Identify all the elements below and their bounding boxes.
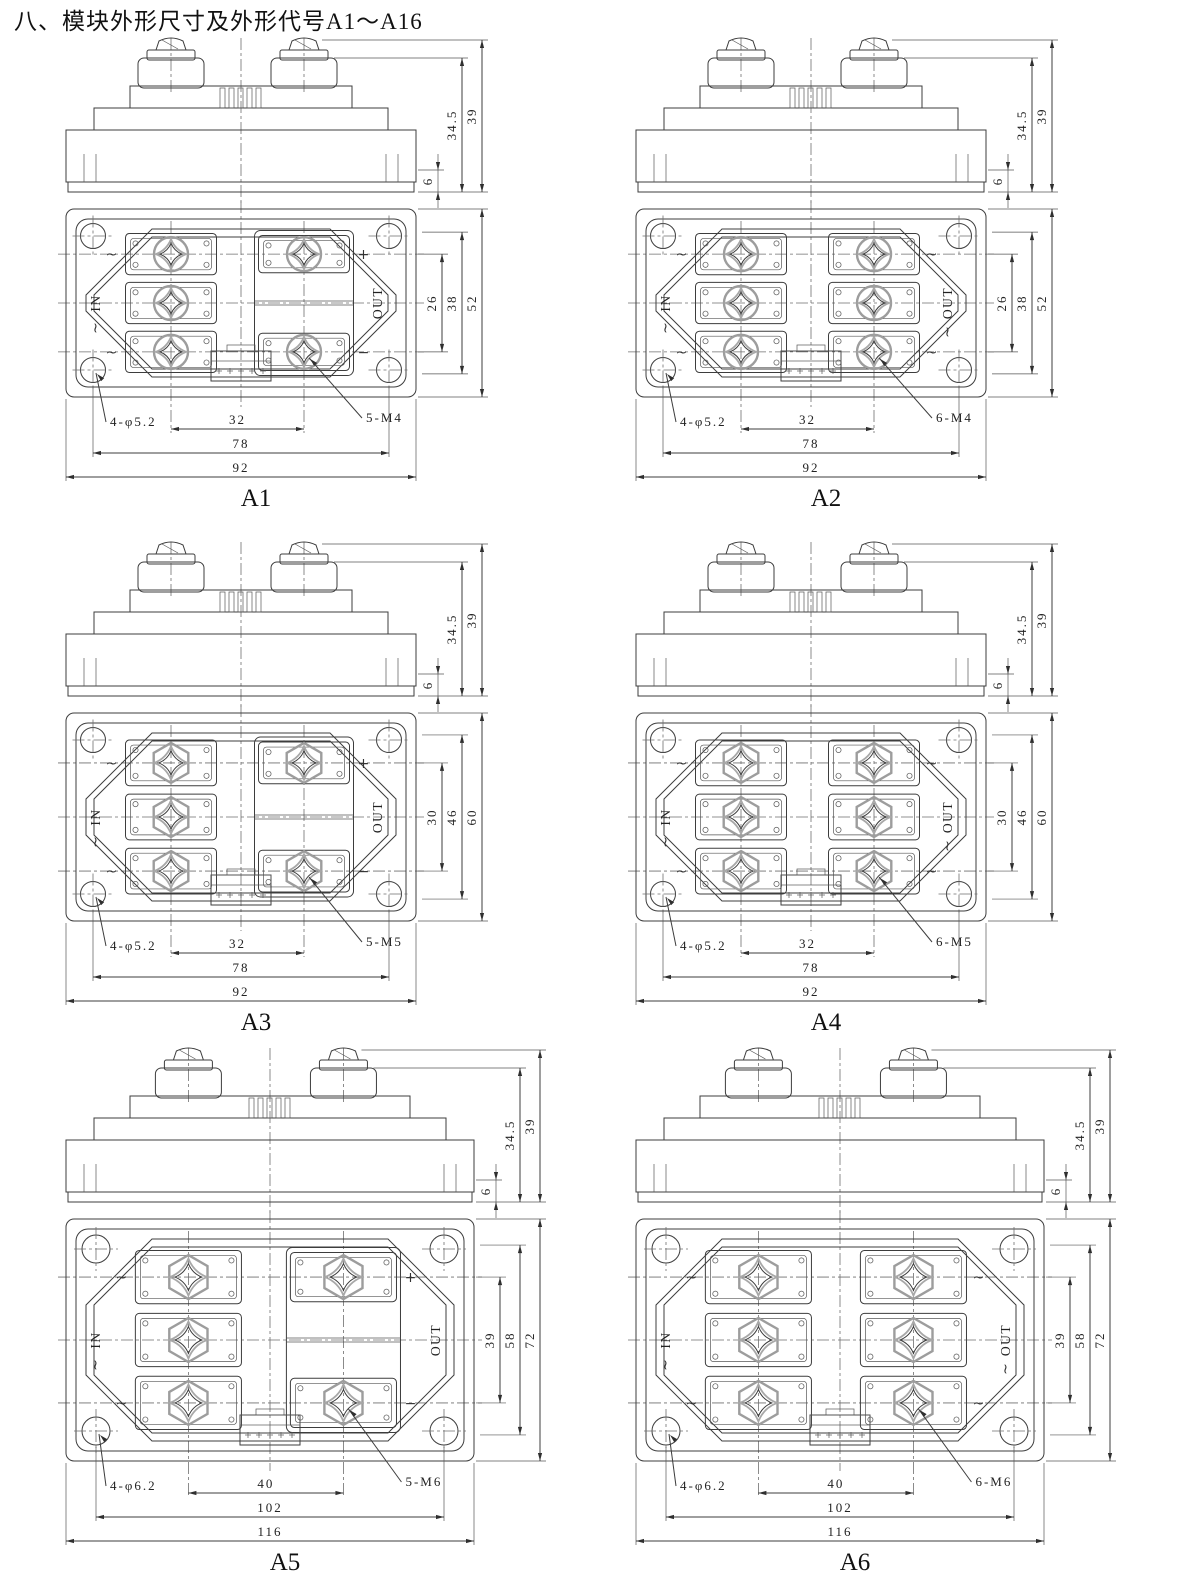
side-dim-tab: 6 [420, 681, 435, 690]
in-label: IN [88, 808, 103, 825]
side-dim-tab: 6 [990, 177, 1005, 186]
mounting-hole [939, 350, 980, 391]
top-view: IN~~~OUT+− [58, 705, 424, 957]
top-view: IN~~~OUT~~~ [628, 201, 994, 433]
phase-mark: ~ [88, 834, 104, 848]
module-drawing: 634.539IN~~~OUT~~~3046603278924-φ5.26-M5 [606, 538, 1166, 1043]
vertical-dimensions: 263852 [418, 209, 488, 397]
module-drawing: 634.539IN~~~OUT~~~395872401021164-φ6.26-… [606, 1044, 1166, 1549]
screws-callout: 5-M6 [405, 1474, 442, 1489]
module-drawing: 634.539IN~~~OUT+−395872401021164-φ6.25-M… [36, 1044, 596, 1549]
polarity-plus-mark: + [358, 247, 372, 263]
phase-mark: ~ [106, 756, 120, 772]
phase-mark: ~ [926, 756, 940, 772]
out-label: OUT [370, 287, 385, 319]
side-dim-total: 39 [1034, 108, 1049, 125]
in-label: IN [658, 808, 673, 825]
vert-dim-outer: 60 [1034, 809, 1049, 826]
mounting-hole [73, 720, 114, 761]
phase-mark: ~ [926, 864, 940, 880]
side-dim-body: 34.5 [1014, 614, 1029, 645]
vert-dim-mid: 38 [1014, 295, 1029, 312]
pitch-dimension: 40 [827, 1476, 844, 1491]
screws-callout: 5-M4 [366, 410, 403, 425]
vert-dim-outer: 60 [464, 809, 479, 826]
in-label: IN [658, 294, 673, 311]
outer-width-dimension: 92 [803, 460, 820, 475]
vert-dim-outer: 52 [1034, 295, 1049, 312]
figure-a6: 634.539IN~~~OUT~~~395872401021164-φ6.26-… [606, 1044, 1166, 1589]
vertical-dimensions: 304660 [418, 713, 488, 921]
vert-dim-inner: 39 [1052, 1332, 1067, 1349]
side-dim-tab: 6 [990, 681, 1005, 690]
figure-label: A1 [211, 485, 301, 513]
side-view: 634.539 [66, 38, 488, 208]
side-dim-total: 39 [1034, 612, 1049, 629]
phase-mark: ~ [926, 247, 940, 263]
holes-callout: 4-φ5.2 [110, 414, 157, 429]
mid-width-dimension: 102 [257, 1500, 283, 1515]
side-dimensions: 634.539 [322, 544, 488, 712]
mid-width-dimension: 102 [827, 1500, 853, 1515]
phase-mark: ~ [998, 1361, 1014, 1375]
side-dim-total: 39 [1092, 1118, 1107, 1135]
vert-dim-inner: 30 [424, 809, 439, 826]
vertical-dimensions: 395872 [1046, 1219, 1116, 1461]
vert-dim-outer: 72 [1092, 1332, 1107, 1349]
phase-mark: ~ [940, 324, 956, 338]
out-label: OUT [428, 1324, 443, 1356]
screws-callout: 6-M4 [936, 410, 973, 425]
mounting-hole [74, 1227, 118, 1271]
in-label: IN [88, 294, 103, 311]
vert-dim-inner: 39 [482, 1332, 497, 1349]
top-view: IN~~~OUT~~~ [628, 705, 994, 957]
in-label: IN [88, 1331, 103, 1348]
figure-label: A6 [810, 1549, 900, 1577]
figure-label: A3 [211, 1009, 301, 1037]
datasheet-page: 八、模块外形尺寸及外形代号A1～A16 634.539IN~~~OUT+−263… [0, 0, 1200, 1596]
phase-mark: ~ [973, 1396, 987, 1412]
module-drawing: 634.539IN~~~OUT~~~2638523278924-φ5.26-M4 [606, 34, 1166, 539]
holes-callout: 4-φ5.2 [680, 938, 727, 953]
polarity-minus-mark: − [405, 1396, 419, 1412]
side-dimensions: 634.539 [361, 1050, 546, 1218]
figure-a2: 634.539IN~~~OUT~~~2638523278924-φ5.26-M4… [606, 34, 1166, 579]
phase-mark: ~ [685, 1270, 699, 1286]
side-dim-tab: 6 [1048, 1187, 1063, 1196]
outer-width-dimension: 92 [233, 984, 250, 999]
side-dim-tab: 6 [478, 1187, 493, 1196]
mounting-hole [369, 350, 410, 391]
side-dimensions: 634.539 [322, 40, 488, 208]
vert-dim-outer: 72 [522, 1332, 537, 1349]
holes-callout: 4-φ5.2 [110, 938, 157, 953]
side-dim-total: 39 [522, 1118, 537, 1135]
phase-mark: ~ [115, 1396, 129, 1412]
mounting-hole [992, 1409, 1036, 1453]
phase-mark: ~ [940, 838, 956, 852]
vert-dim-mid: 58 [502, 1332, 517, 1349]
mid-width-dimension: 78 [803, 436, 820, 451]
top-view: IN~~~OUT+− [58, 1211, 482, 1497]
screws-callout: 6-M6 [975, 1474, 1012, 1489]
out-label: OUT [940, 287, 955, 319]
outer-width-dimension: 116 [827, 1524, 852, 1539]
screws-callout: 6-M5 [936, 934, 973, 949]
pitch-dimension: 40 [257, 1476, 274, 1491]
side-view: 634.539 [66, 1048, 546, 1218]
mid-width-dimension: 78 [233, 960, 250, 975]
figure-label: A4 [781, 1009, 871, 1037]
phase-mark: ~ [973, 1270, 987, 1286]
mounting-hole [644, 1409, 688, 1453]
outer-width-dimension: 92 [233, 460, 250, 475]
mounting-hole [939, 874, 980, 915]
mounting-hole [992, 1227, 1036, 1271]
vertical-dimensions: 304660 [988, 713, 1058, 921]
vert-dim-mid: 58 [1072, 1332, 1087, 1349]
mounting-hole [939, 720, 980, 761]
side-view: 634.539 [66, 542, 488, 712]
vertical-dimensions: 395872 [476, 1219, 546, 1461]
vert-dim-inner: 26 [994, 295, 1009, 312]
polarity-plus-mark: + [358, 756, 372, 772]
phase-mark: ~ [106, 345, 120, 361]
page-title: 八、模块外形尺寸及外形代号A1～A16 [14, 2, 423, 36]
top-view: IN~~~OUT~~~ [628, 1211, 1052, 1497]
phase-mark: ~ [88, 1357, 104, 1371]
figure-a4: 634.539IN~~~OUT~~~3046603278924-φ5.26-M5… [606, 538, 1166, 1083]
mounting-hole [422, 1409, 466, 1453]
side-dim-total: 39 [464, 612, 479, 629]
mounting-hole [74, 1409, 118, 1453]
vert-dim-mid: 46 [444, 809, 459, 826]
mounting-hole [644, 1227, 688, 1271]
out-label: OUT [940, 801, 955, 833]
connector-fins [249, 1098, 290, 1118]
phase-mark: ~ [658, 320, 674, 334]
mounting-hole [643, 720, 684, 761]
connector-fins [819, 1098, 860, 1118]
side-dim-tab: 6 [420, 177, 435, 186]
phase-mark: ~ [658, 834, 674, 848]
out-label: OUT [370, 801, 385, 833]
phase-mark: ~ [676, 247, 690, 263]
figure-label: A2 [781, 485, 871, 513]
out-label: OUT [998, 1324, 1013, 1356]
mounting-hole [939, 216, 980, 257]
module-drawing: 634.539IN~~~OUT+−2638523278924-φ5.25-M4 [36, 34, 596, 539]
side-view: 634.539 [636, 542, 1058, 712]
side-dim-total: 39 [464, 108, 479, 125]
side-dim-body: 34.5 [502, 1120, 517, 1151]
mid-width-dimension: 78 [233, 436, 250, 451]
phase-mark: ~ [926, 345, 940, 361]
mounting-hole [369, 874, 410, 915]
figure-label: A5 [240, 1549, 330, 1577]
polarity-minus-mark: − [358, 864, 372, 880]
in-label: IN [658, 1331, 673, 1348]
side-dim-body: 34.5 [1072, 1120, 1087, 1151]
mounting-hole [369, 216, 410, 257]
side-dim-body: 34.5 [444, 110, 459, 141]
holes-callout: 4-φ5.2 [680, 414, 727, 429]
side-dim-body: 34.5 [444, 614, 459, 645]
side-dim-body: 34.5 [1014, 110, 1029, 141]
module-drawing: 634.539IN~~~OUT+−3046603278924-φ5.25-M5 [36, 538, 596, 1043]
vert-dim-inner: 26 [424, 295, 439, 312]
side-view: 634.539 [636, 1048, 1116, 1218]
phase-mark: ~ [676, 864, 690, 880]
pitch-dimension: 32 [229, 412, 246, 427]
phase-mark: ~ [88, 320, 104, 334]
vert-dim-mid: 38 [444, 295, 459, 312]
connector-fins [220, 592, 261, 612]
mounting-hole [369, 720, 410, 761]
vert-dim-mid: 46 [1014, 809, 1029, 826]
polarity-minus-mark: − [358, 345, 372, 361]
side-dimensions: 634.539 [892, 40, 1058, 208]
outer-width-dimension: 116 [257, 1524, 282, 1539]
polarity-plus-mark: + [405, 1270, 419, 1286]
connector-fins [220, 88, 261, 108]
figure-a1: 634.539IN~~~OUT+−2638523278924-φ5.25-M4A… [36, 34, 596, 579]
outer-width-dimension: 92 [803, 984, 820, 999]
screws-callout: 5-M5 [366, 934, 403, 949]
phase-mark: ~ [676, 345, 690, 361]
mid-width-dimension: 78 [803, 960, 820, 975]
pitch-dimension: 32 [799, 412, 816, 427]
figure-a5: 634.539IN~~~OUT+−395872401021164-φ6.25-M… [36, 1044, 596, 1589]
mounting-hole [422, 1227, 466, 1271]
connector-fins [790, 88, 831, 108]
phase-mark: ~ [115, 1270, 129, 1286]
vert-dim-inner: 30 [994, 809, 1009, 826]
phase-mark: ~ [106, 247, 120, 263]
phase-mark: ~ [106, 864, 120, 880]
phase-mark: ~ [658, 1357, 674, 1371]
phase-mark: ~ [676, 756, 690, 772]
side-view: 634.539 [636, 38, 1058, 208]
holes-callout: 4-φ6.2 [110, 1478, 157, 1493]
vertical-dimensions: 263852 [988, 209, 1058, 397]
top-view: IN~~~OUT+− [58, 201, 424, 433]
phase-mark: ~ [685, 1396, 699, 1412]
connector-fins [790, 592, 831, 612]
side-dimensions: 634.539 [892, 544, 1058, 712]
holes-callout: 4-φ6.2 [680, 1478, 727, 1493]
side-dimensions: 634.539 [931, 1050, 1116, 1218]
pitch-dimension: 32 [799, 936, 816, 951]
pitch-dimension: 32 [229, 936, 246, 951]
figure-a3: 634.539IN~~~OUT+−3046603278924-φ5.25-M5A… [36, 538, 596, 1083]
vert-dim-outer: 52 [464, 295, 479, 312]
